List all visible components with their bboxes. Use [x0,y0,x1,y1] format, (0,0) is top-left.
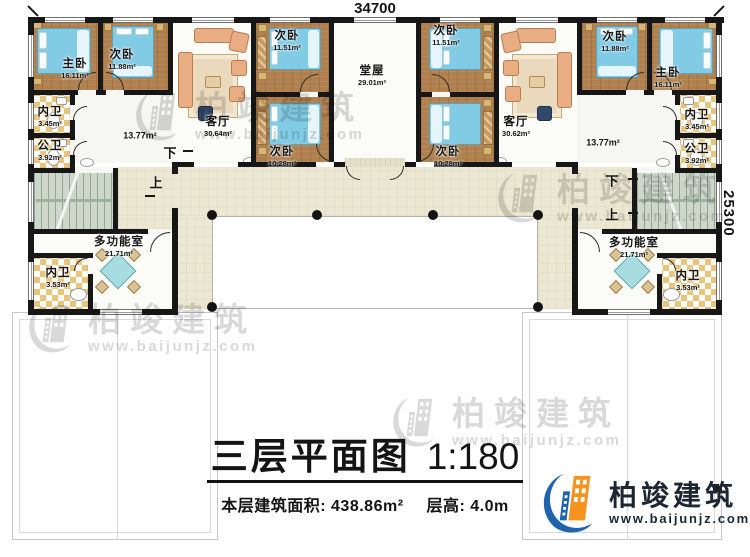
window [28,103,34,129]
column [207,210,217,220]
room-name: 多功能室 [94,236,144,250]
room-label: 内卫3.53m² [46,267,71,289]
wardrobe [257,36,267,70]
column [533,302,543,312]
armchair [503,60,519,76]
plan-scale: 1:180 [427,436,520,477]
stair-rail [36,199,111,202]
floor-plan-canvas: 主卧16.11m²次卧11.88m²内卫3.45m²公卫3.92m²13.77m… [0,0,750,557]
wall [96,90,106,95]
wall [421,92,432,97]
washbasin [656,158,670,167]
room-area: 10.28m² [434,159,462,168]
nightstand [258,72,267,80]
company-logo-brand: 柏竣建筑 [609,481,750,510]
room-area: 3.92m² [685,156,710,165]
room-name: 主卧 [654,67,682,81]
wall [70,155,75,173]
wall [659,253,717,258]
nightstand [483,99,492,107]
wall [675,133,717,138]
room-area: 21.71m² [94,249,144,258]
bed-sheet [308,30,319,68]
washbasin [80,158,94,167]
wall [28,229,148,234]
dimension-top-width: 34700 [330,0,420,17]
wardrobe [483,111,493,145]
wall [329,22,334,162]
wall [644,90,654,95]
wall [70,120,75,140]
wall [572,208,578,315]
coffee-table [205,76,221,88]
wall [318,92,329,97]
sofa [557,52,572,108]
wall [675,95,680,105]
hall-floor [334,22,416,162]
bed-sheet [431,105,442,143]
window [113,17,153,23]
room-area: 3.53m² [46,280,71,289]
room-name: 次卧 [273,30,301,44]
window [28,140,34,164]
plan-title-line: 三层平面图1:180 [207,438,524,483]
wall [172,208,178,315]
wall [494,22,499,162]
room-label: 次卧10.28m² [268,146,296,168]
nightstand [638,23,646,31]
stair-down-label: 下 [163,143,176,162]
floor-area-value: 438.86m² [331,498,404,515]
wardrobe [257,111,267,145]
wall [628,178,638,180]
wall [27,5,38,16]
bed-sheet [598,66,636,76]
room-name: 客厅 [204,116,232,130]
pillow [39,52,47,69]
wall [172,162,194,167]
wall [33,168,75,173]
nightstand [33,22,42,29]
wall [88,274,93,314]
window [28,182,34,222]
room-name: 公卫 [38,140,63,154]
room-label: 多功能室21.71m² [609,237,659,259]
room-name: 次卧 [432,25,460,39]
company-logo-url: www.baijunjz.com [609,511,750,526]
wall [602,229,722,234]
dimension-right-height: 25300 [720,190,737,270]
floor-height-value: 4.0m [470,498,508,515]
pillow [271,106,278,122]
room-area: 3.45m² [38,119,63,128]
wall [675,168,717,173]
column [533,210,543,220]
column [428,210,438,220]
room-name: 多功能室 [609,237,659,251]
window [516,17,558,23]
courtyard-deck [118,167,632,216]
courtyard-deck [538,216,573,309]
stair-rail [639,199,714,202]
company-logo-icon [540,468,602,539]
stair-up-label: 上 [605,205,618,224]
nightstand [104,23,112,31]
room-label: 公卫3.92m² [685,143,710,165]
nightstand [258,99,267,107]
courtyard-deck [177,216,212,309]
wall [657,274,662,314]
room-area: 10.28m² [268,159,296,168]
room-label: 公卫3.92m² [38,140,63,162]
room-name: 客厅 [502,116,530,130]
stair-up-label: 上 [149,173,162,192]
window [192,17,234,23]
bed-sheet [661,30,673,72]
room-label: 次卧11.88m² [108,49,136,71]
room-area: 11.51m² [432,38,460,47]
room-area: 16.11m² [654,80,682,89]
room-label: 内卫3.45m² [685,109,710,131]
wall [256,92,300,97]
pillow [116,28,132,35]
pillow [443,50,450,65]
wall [628,212,638,214]
plan-title: 三层平面图 [211,436,411,477]
plan-stats: 本层建筑面积: 438.86m² 层高: 4.0m [145,492,585,516]
wardrobe [483,36,493,70]
room-label: 内卫3.45m² [38,106,63,128]
courtyard-deck [118,216,172,229]
room-label: 次卧10.28m² [434,146,462,168]
room-name: 次卧 [268,146,296,160]
roof-line [117,312,118,540]
armchair [500,30,522,53]
room-label: 多功能室21.71m² [94,236,144,258]
room-label: 客厅30.64m² [204,116,232,138]
floor-area-label: 本层建筑面积: [221,498,326,515]
room-area: 3.92m² [38,153,63,162]
nightstand [483,24,492,32]
armchair [505,86,521,102]
wall [577,90,626,95]
window [665,17,705,23]
room-name: 内卫 [676,270,701,284]
toilet [70,288,87,301]
nightstand [483,147,492,155]
room-label: 次卧11.51m² [432,25,460,47]
pillow [271,50,278,65]
window [716,140,722,164]
stair-down-label: 下 [605,171,618,190]
room-label: 13.77m² [123,131,157,142]
room-label: 次卧11.88m² [601,31,629,53]
wall [675,120,680,140]
window [270,17,310,23]
nightstand [156,23,164,31]
wall [334,162,345,167]
pillow [443,125,450,140]
wall [556,162,578,167]
wall [33,253,91,258]
armchair [231,60,247,76]
wall [70,95,75,105]
room-label: 次卧11.51m² [273,30,301,52]
column [207,302,217,312]
wall [145,195,155,197]
pillow [39,32,47,49]
pillow [135,28,149,35]
pillow [703,52,711,69]
room-label: 堂屋29.01m² [358,65,386,87]
sink [683,97,694,105]
wall [405,162,416,167]
window [354,17,396,23]
room-name: 次卧 [108,49,136,63]
room-area: 11.88m² [108,62,136,71]
wall [183,150,193,152]
room-area: 3.53m² [676,283,701,292]
room-area: 13.77m² [586,138,620,149]
room-area: 11.51m² [273,43,301,52]
room-area: 13.77m² [123,131,157,142]
nightstand [483,72,492,80]
bed-sheet [308,105,319,143]
room-name: 内卫 [46,267,71,281]
window [28,35,34,77]
wall [33,133,75,138]
room-label: 主卧16.11m² [61,58,89,80]
window [28,262,34,300]
room-area: 3.45m² [685,122,710,131]
nightstand [585,23,593,31]
sofa [516,28,556,43]
wall [577,22,582,90]
nightstand [258,147,267,155]
pillow [271,125,278,140]
wall [675,155,680,173]
room-name: 次卧 [601,31,629,45]
sofa [194,28,234,43]
nightstand [33,78,42,85]
room-name: 内卫 [685,109,710,123]
room-name: 主卧 [61,58,89,72]
room-name: 次卧 [434,146,462,160]
room-area: 16.11m² [61,71,89,80]
column [312,210,322,220]
room-name: 堂屋 [358,65,386,79]
window [716,35,722,77]
armchair [229,86,245,102]
accent-chair [537,106,552,121]
sink [56,97,67,105]
window [716,103,722,129]
coffee-table [529,76,545,88]
room-area: 30.62m² [502,129,530,138]
wall [98,22,103,90]
title-block: 三层平面图1:180 本层建筑面积: 438.86m² 层高: 4.0m [145,438,585,516]
wall [113,168,118,229]
room-label: 主卧16.11m² [654,67,682,89]
floor-height-label: 层高: [426,498,465,515]
window [100,309,142,315]
room-area: 11.88m² [601,44,629,53]
room-label: 客厅30.62m² [502,116,530,138]
wall [88,253,93,258]
room-area: 21.71m² [609,250,659,259]
courtyard-void [212,216,538,309]
pillow [443,106,450,122]
window [597,17,637,23]
room-area: 29.01m² [358,78,386,87]
wall [713,5,724,16]
window [45,17,85,23]
sofa [178,52,193,108]
window [440,17,480,23]
wall [647,22,652,90]
room-name: 内卫 [38,106,63,120]
room-label: 内卫3.53m² [676,270,701,292]
wall [450,92,494,97]
room-label: 13.77m² [586,138,620,149]
room-area: 30.64m² [204,129,232,138]
wall [168,22,173,90]
company-logo: 柏竣建筑 www.baijunjz.com [540,468,750,539]
room-name: 公卫 [685,143,710,157]
window [608,309,650,315]
wall [124,90,173,95]
pillow [703,32,711,49]
nightstand [258,24,267,32]
